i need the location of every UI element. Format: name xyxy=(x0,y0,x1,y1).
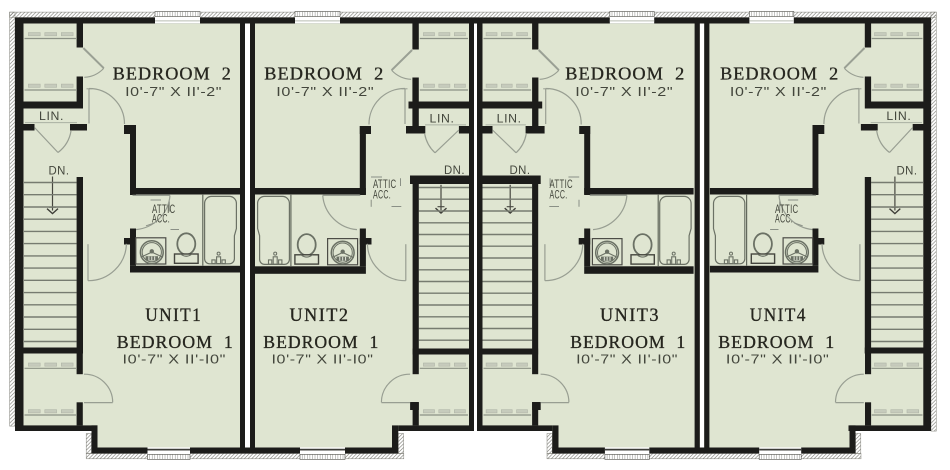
svg-text:BEDROOM 1: BEDROOM 1 xyxy=(718,332,835,352)
svg-text:ACC.: ACC. xyxy=(373,188,391,202)
svg-text:LIN.: LIN. xyxy=(497,112,522,126)
svg-text:LIN.: LIN. xyxy=(886,109,911,123)
svg-text:DN.: DN. xyxy=(897,164,918,178)
svg-text:I0'-7" X II'-2": I0'-7" X II'-2" xyxy=(575,84,673,99)
svg-text:BEDROOM 2: BEDROOM 2 xyxy=(565,63,685,83)
svg-text:UNIT2: UNIT2 xyxy=(290,306,350,326)
svg-text:BEDROOM 2: BEDROOM 2 xyxy=(113,63,232,83)
svg-text:LIN.: LIN. xyxy=(430,112,455,126)
svg-text:I0'-7" X II'-I0": I0'-7" X II'-I0" xyxy=(272,351,374,366)
svg-text:I0'-7" X II'-I0": I0'-7" X II'-I0" xyxy=(726,351,830,366)
svg-text:DN.: DN. xyxy=(49,164,70,178)
svg-text:BEDROOM 1: BEDROOM 1 xyxy=(263,332,379,352)
svg-text:LIN.: LIN. xyxy=(39,109,64,123)
svg-text:I0'-7" X II'-I0": I0'-7" X II'-I0" xyxy=(123,351,227,366)
svg-text:ACC.: ACC. xyxy=(550,188,568,202)
svg-text:BEDROOM 2: BEDROOM 2 xyxy=(264,63,384,83)
svg-text:I0'-7" X II'-2": I0'-7" X II'-2" xyxy=(276,84,374,99)
svg-text:ACC.: ACC. xyxy=(775,211,793,225)
svg-text:ACC.: ACC. xyxy=(152,211,170,225)
svg-text:DN.: DN. xyxy=(510,163,531,177)
svg-text:BEDROOM 2: BEDROOM 2 xyxy=(720,63,839,83)
svg-text:UNIT3: UNIT3 xyxy=(600,306,660,326)
svg-text:UNIT1: UNIT1 xyxy=(145,306,202,326)
svg-text:I0'-7" X II'-2": I0'-7" X II'-2" xyxy=(730,84,827,99)
svg-text:BEDROOM 1: BEDROOM 1 xyxy=(570,332,686,352)
svg-text:UNIT4: UNIT4 xyxy=(750,306,807,326)
svg-text:I0'-7" X II'-I0": I0'-7" X II'-I0" xyxy=(576,351,678,366)
svg-text:I0'-7" X II'-2": I0'-7" X II'-2" xyxy=(125,84,222,99)
svg-text:BEDROOM 1: BEDROOM 1 xyxy=(117,332,234,352)
svg-text:DN.: DN. xyxy=(444,163,465,177)
